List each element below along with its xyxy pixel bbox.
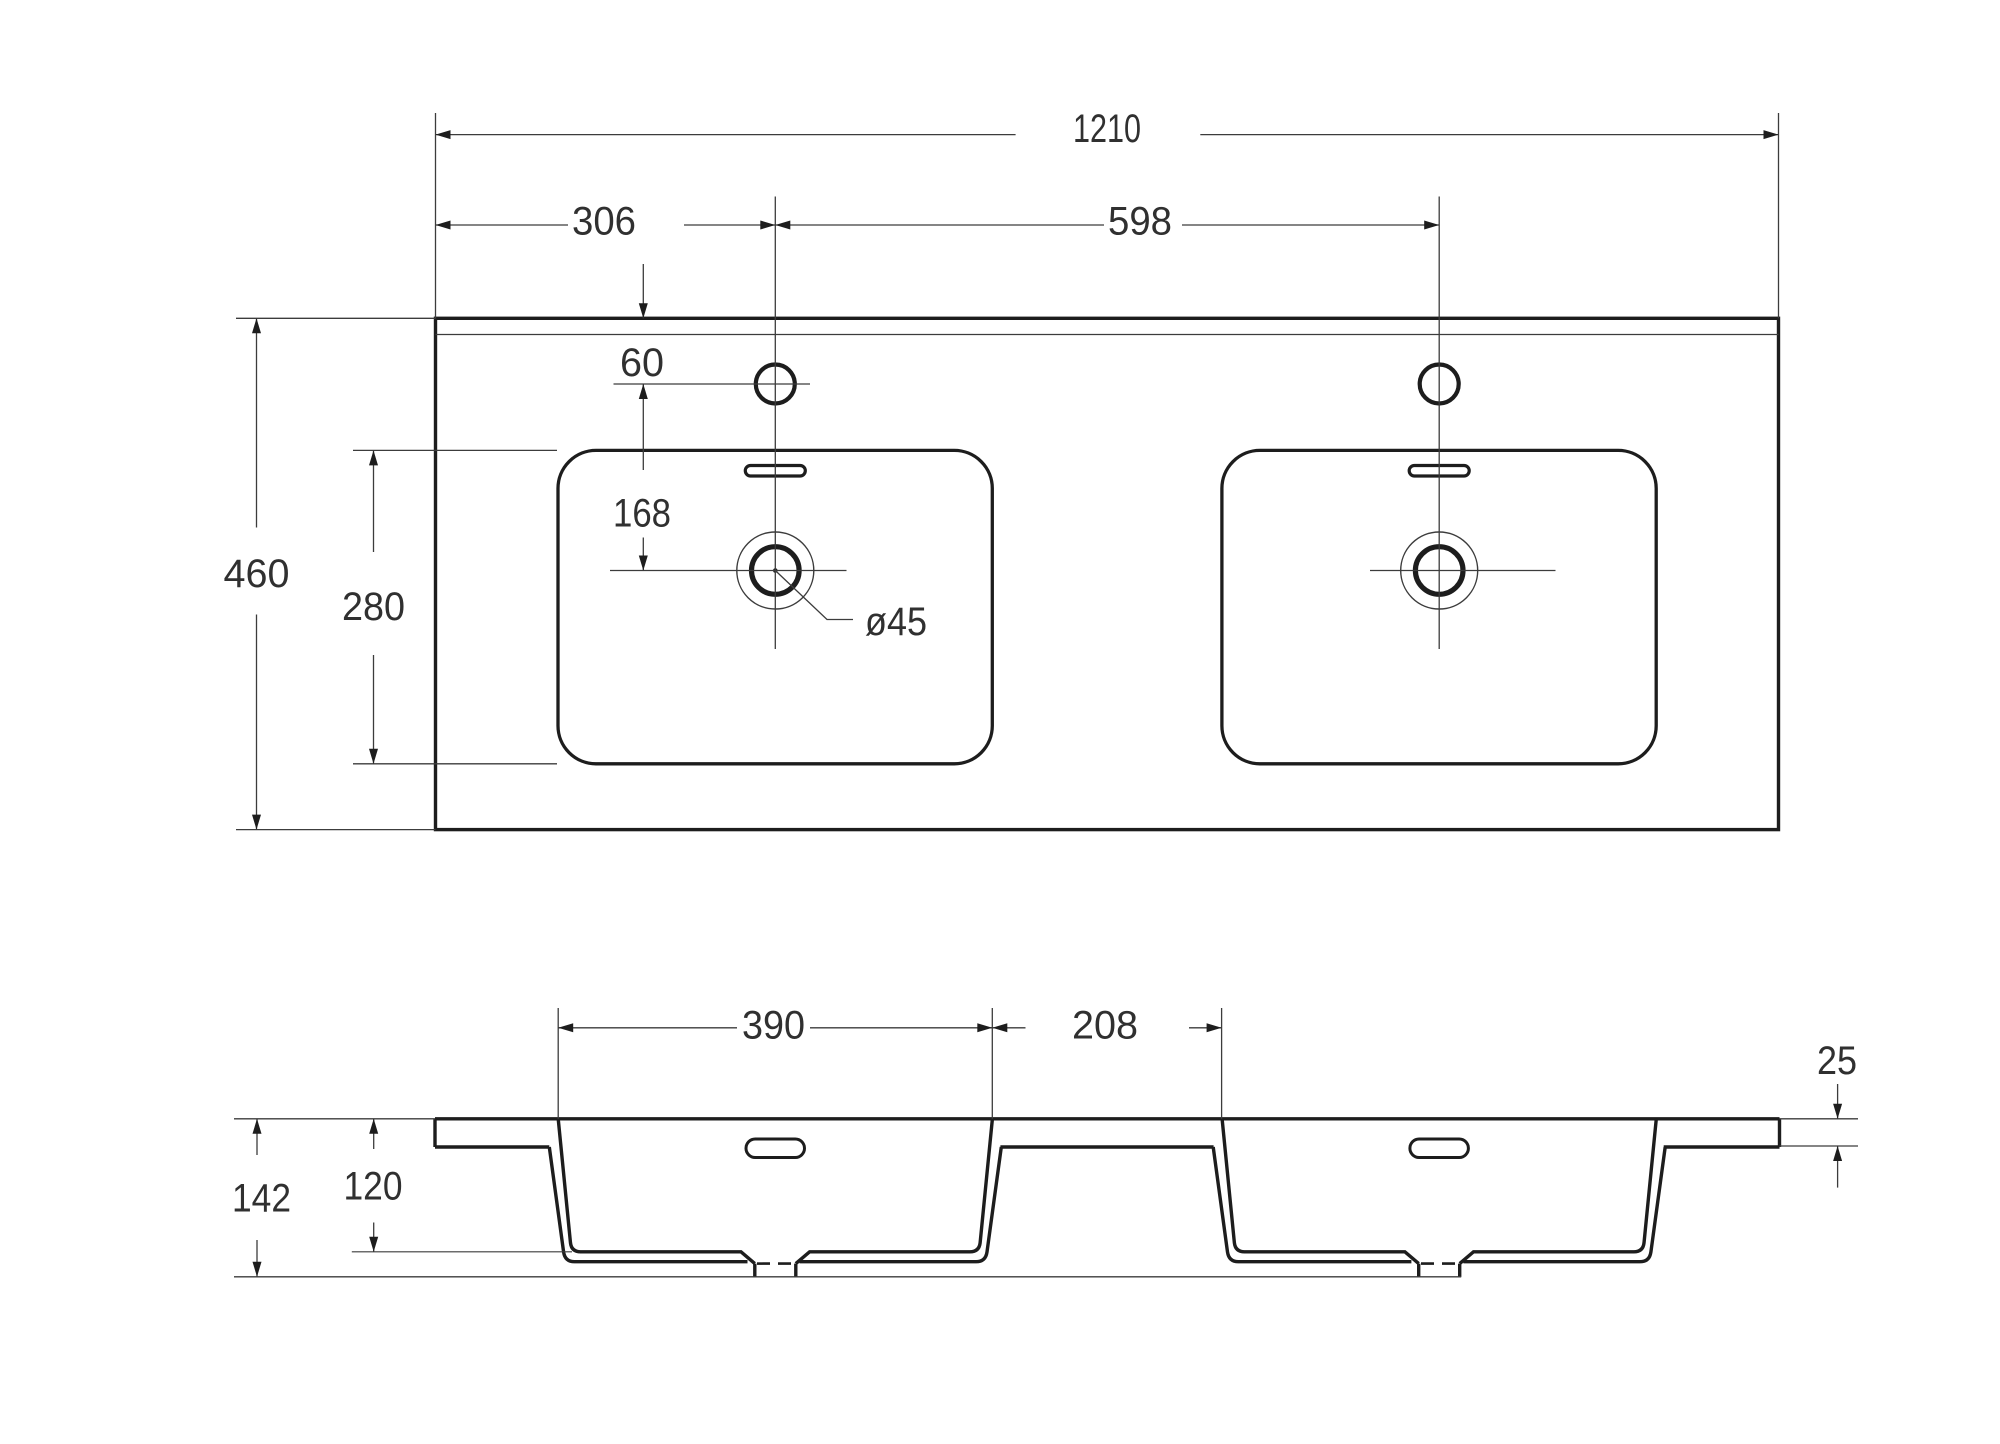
svg-text:168: 168 bbox=[613, 491, 671, 535]
svg-text:ø45: ø45 bbox=[865, 600, 927, 644]
svg-text:142: 142 bbox=[232, 1176, 291, 1220]
svg-text:460: 460 bbox=[224, 552, 290, 596]
svg-text:1210: 1210 bbox=[1073, 107, 1141, 151]
svg-text:120: 120 bbox=[344, 1164, 403, 1208]
svg-text:208: 208 bbox=[1072, 1003, 1138, 1047]
svg-text:390: 390 bbox=[742, 1003, 805, 1047]
svg-text:280: 280 bbox=[342, 585, 405, 629]
svg-text:598: 598 bbox=[1108, 200, 1172, 244]
svg-text:60: 60 bbox=[620, 341, 664, 385]
svg-text:25: 25 bbox=[1817, 1039, 1857, 1083]
svg-text:306: 306 bbox=[572, 200, 636, 244]
